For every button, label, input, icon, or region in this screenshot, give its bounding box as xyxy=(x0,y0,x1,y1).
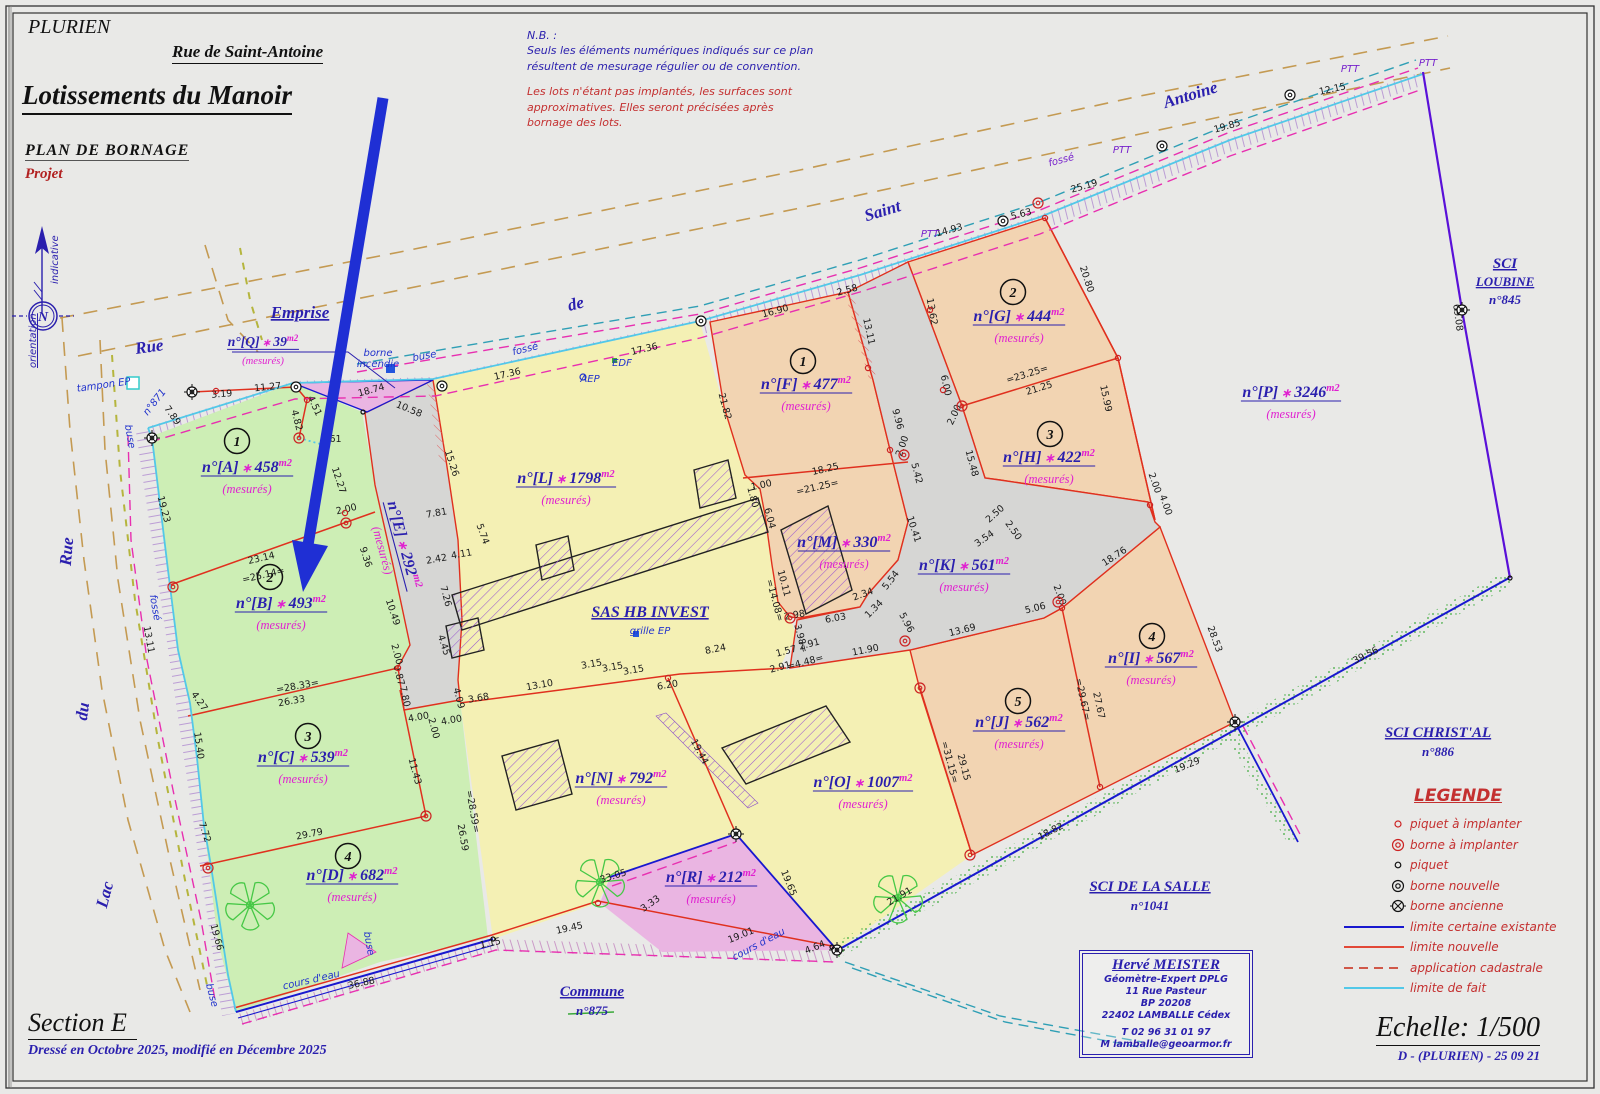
legend-item-borne-a-implanter: borne à implanter xyxy=(1338,835,1558,856)
utility-label: AEP xyxy=(579,374,600,385)
footer-left: Section E Dressé en Octobre 2025, modifi… xyxy=(28,1008,327,1059)
borne-ancienne-mark xyxy=(184,384,200,400)
nb-warning-line: bornage des lots. xyxy=(527,115,867,130)
utility-label: tampon EP xyxy=(76,376,132,395)
owner-label-line: n°845 xyxy=(1489,292,1521,307)
street-label: Rue xyxy=(133,335,165,358)
plan-subtitle-text: PLAN DE BORNAGE xyxy=(25,142,189,161)
limite-de-fait-icon xyxy=(1338,981,1410,995)
surveyor-name: Hervé MEISTER xyxy=(1085,957,1247,974)
owner-label: SCI DE LA SALLEn°1041 xyxy=(1089,879,1210,913)
measurement-label: 12.15 xyxy=(1318,81,1347,97)
street-label: Saint xyxy=(862,196,904,225)
borne-a-implanter-icon xyxy=(1338,838,1410,852)
measurement-label: 4.00 xyxy=(1157,493,1175,517)
utility-label: EDF xyxy=(612,358,632,369)
survey-plan-page: N indicative orientation 18.7410.5817.36… xyxy=(0,0,1600,1094)
surveyor-line: 11 Rue Pasteur xyxy=(1085,986,1247,998)
legend-item-piquet-a-implanter: piquet à implanter xyxy=(1338,814,1558,835)
utility-label: PTT xyxy=(1113,145,1132,156)
surveyor-line: BP 20208 xyxy=(1085,998,1247,1010)
borne-nouvelle-mark xyxy=(1157,141,1167,151)
parcel-label-q: n°[Q] ∗ 39m2(mesurés) xyxy=(227,333,299,367)
utility-label: buse xyxy=(122,424,137,450)
surveyor-line: 22402 LAMBALLE Cédex xyxy=(1085,1010,1247,1022)
measurement-label: 19.45 xyxy=(555,920,584,936)
parcel-measured-note: (mesurés) xyxy=(596,793,645,807)
parcel-measured-note: (mesurés) xyxy=(256,618,305,632)
parcel-measured-note: (mesurés) xyxy=(838,797,887,811)
owner-label-line: n°886 xyxy=(1422,744,1454,759)
owner-label: Communen°875 xyxy=(560,984,625,1018)
borne-ancienne-icon xyxy=(1338,899,1410,913)
plan-status: Projet xyxy=(25,166,189,183)
utility-label: buse xyxy=(203,982,220,1008)
owner-label-line: LOUBINE xyxy=(1475,274,1535,289)
legend-item-limite-de-fait: limite de fait xyxy=(1338,978,1558,999)
parcel-measured-note: (mesurés) xyxy=(242,356,284,367)
owner-label: SAS HB INVEST xyxy=(591,604,710,621)
borne-nouvelle-icon xyxy=(1338,879,1410,893)
lot-number: 3 xyxy=(304,730,312,745)
commune-name: PLURIEN xyxy=(28,16,110,39)
parcel-number: n°[P] ∗ 3246m2 xyxy=(1242,383,1340,401)
street-label: Antoine xyxy=(1160,77,1220,112)
owner-label: SCILOUBINEn°845 xyxy=(1475,256,1535,307)
owner-label-line: SCI xyxy=(1493,256,1518,272)
lot-number: 5 xyxy=(1015,695,1022,710)
parcel-measured-note: (mesurés) xyxy=(541,493,590,507)
surveyor-line: Géomètre-Expert DPLG xyxy=(1085,974,1247,986)
owner-label-line: SCI CHRIST'AL xyxy=(1385,725,1491,741)
parcel-number: n°[L] ∗ 1798m2 xyxy=(517,469,615,487)
scale-label: Echelle: 1/500 xyxy=(1376,1012,1540,1046)
nb-warning-line: Les lots n'étant pas implantés, les surf… xyxy=(527,84,867,99)
owner-label-line: n°875 xyxy=(576,1003,608,1018)
surveyor-phone: T 02 96 31 01 97 xyxy=(1085,1027,1247,1039)
borne-nouvelle-mark xyxy=(291,382,301,392)
parcel-measured-note: (mesurés) xyxy=(939,580,988,594)
parcel-measured-note: (mesurés) xyxy=(819,557,868,571)
measurement-label: 19.85 xyxy=(1213,118,1242,136)
borne-nouvelle-mark xyxy=(998,216,1008,226)
parcel-measured-note: (mesurés) xyxy=(1024,472,1073,486)
piquet-icon xyxy=(1338,858,1410,872)
lot-number: 1 xyxy=(234,435,241,450)
parcel-number: n°[Q] ∗ 39m2 xyxy=(228,333,299,349)
parcel-measured-note: (mesurés) xyxy=(686,892,735,906)
title-block: PLURIEN xyxy=(28,16,110,39)
plan-ref-label: D - (PLURIEN) - 25 09 21 xyxy=(1230,1048,1540,1064)
borne-nouvelle-mark xyxy=(1285,90,1295,100)
parcel-measured-note: (mesurés) xyxy=(327,890,376,904)
street-label: Emprise xyxy=(270,303,330,322)
utility-label: grille EP xyxy=(630,626,671,637)
owner-label-line: n°1041 xyxy=(1131,898,1169,913)
owner-label: SCI CHRIST'ALn°886 xyxy=(1385,725,1491,759)
utility-label: PTT xyxy=(921,229,940,240)
application-cadastrale-icon xyxy=(1338,961,1410,975)
nb-line: résultent de mesurage régulier ou de con… xyxy=(527,59,867,74)
borne-nouvelle-mark xyxy=(437,381,447,391)
legend: LEGENDE piquet à implanter borne à impla… xyxy=(1338,786,1558,999)
street-label: du xyxy=(72,701,93,721)
lot-number: 4 xyxy=(344,850,352,865)
limite-sci-loubine xyxy=(1423,72,1510,578)
notes-block: N.B. : Seuls les éléments numériques ind… xyxy=(527,28,867,130)
utility-label: PTT xyxy=(1419,58,1438,69)
measurement-label: 13.11 xyxy=(141,625,157,654)
legend-item-borne-ancienne: borne ancienne xyxy=(1338,896,1558,917)
utility-label: borne xyxy=(363,348,392,359)
street-label: Rue xyxy=(56,536,78,567)
borne-a-implanter-mark xyxy=(1033,198,1043,208)
legend-item-limite-nouvelle: limite nouvelle xyxy=(1338,937,1558,958)
parcel-measured-note: (mesurés) xyxy=(781,399,830,413)
legend-item-limite-certaine: limite certaine existante xyxy=(1338,917,1558,938)
plan-title-text: Lotissements du Manoir xyxy=(22,80,292,115)
parcel-number: n°[O] ∗ 1007m2 xyxy=(814,773,914,791)
lot-number: 3 xyxy=(1046,428,1054,443)
parcel-measured-note: (mesurés) xyxy=(1126,673,1175,687)
street-title-text: Rue de Saint-Antoine xyxy=(172,42,323,64)
owner-label-line: SCI DE LA SALLE xyxy=(1089,879,1210,895)
nb-line: Seuls les éléments numériques indiqués s… xyxy=(527,43,867,58)
piquet-a-implanter-icon xyxy=(1338,817,1410,831)
lot-number: 2 xyxy=(1009,286,1017,301)
surveyor-email: M lamballe@geoarmor.fr xyxy=(1085,1039,1247,1051)
limite-nouvelle-icon xyxy=(1338,940,1410,954)
owner-label-line: SAS HB INVEST xyxy=(591,604,710,621)
parcel-measured-note: (mesurés) xyxy=(222,482,271,496)
drafted-label: Dressé en Octobre 2025, modifié en Décem… xyxy=(28,1043,327,1059)
plan-title: Lotissements du Manoir xyxy=(22,80,292,111)
parcel-number: n°[M] ∗ 330m2 xyxy=(797,533,891,551)
utility-label: incendie xyxy=(357,359,399,370)
lot-number: 2 xyxy=(266,571,274,586)
utility-label: buse xyxy=(412,349,438,364)
utility-label: PTT xyxy=(1341,64,1360,75)
lot-number: 1 xyxy=(800,355,807,370)
street-label: Lac xyxy=(92,879,118,911)
surveyor-stamp: Hervé MEISTER Géomètre-Expert DPLG 11 Ru… xyxy=(1079,950,1253,1058)
parcel-measured-note: (mesurés) xyxy=(994,737,1043,751)
street-label: de xyxy=(566,292,587,314)
nb-warning-line: approximatives. Elles seront précisées a… xyxy=(527,100,867,115)
limite-certaine-icon xyxy=(1338,920,1410,934)
parcel-measured-note: (mesurés) xyxy=(1266,407,1315,421)
parcel-label-p: n°[P] ∗ 3246m2(mesurés) xyxy=(1241,383,1341,421)
footer-right: Echelle: 1/500 D - (PLURIEN) - 25 09 21 xyxy=(1230,1012,1540,1064)
section-label: Section E xyxy=(28,1008,137,1040)
legend-item-application-cadastrale: application cadastrale xyxy=(1338,958,1558,979)
parcel-measured-note: (mesurés) xyxy=(994,331,1043,345)
borne-nouvelle-mark xyxy=(696,316,706,326)
legend-item-piquet: piquet xyxy=(1338,855,1558,876)
street-title: Rue de Saint-Antoine xyxy=(172,42,323,62)
north-indicative-label: indicative xyxy=(50,235,61,284)
north-orientation-label: orientation xyxy=(28,313,39,368)
legend-item-borne-nouvelle: borne nouvelle xyxy=(1338,876,1558,897)
owner-label-line: Commune xyxy=(560,984,625,1000)
measurement-label: 14.93 xyxy=(935,222,964,240)
lot-number: 4 xyxy=(1148,630,1156,645)
parcel-measured-note: (mesurés) xyxy=(278,772,327,786)
legend-title: LEGENDE xyxy=(1414,786,1558,806)
nb-heading: N.B. : xyxy=(527,28,867,43)
plan-subtitle: PLAN DE BORNAGE Projet xyxy=(25,142,189,183)
